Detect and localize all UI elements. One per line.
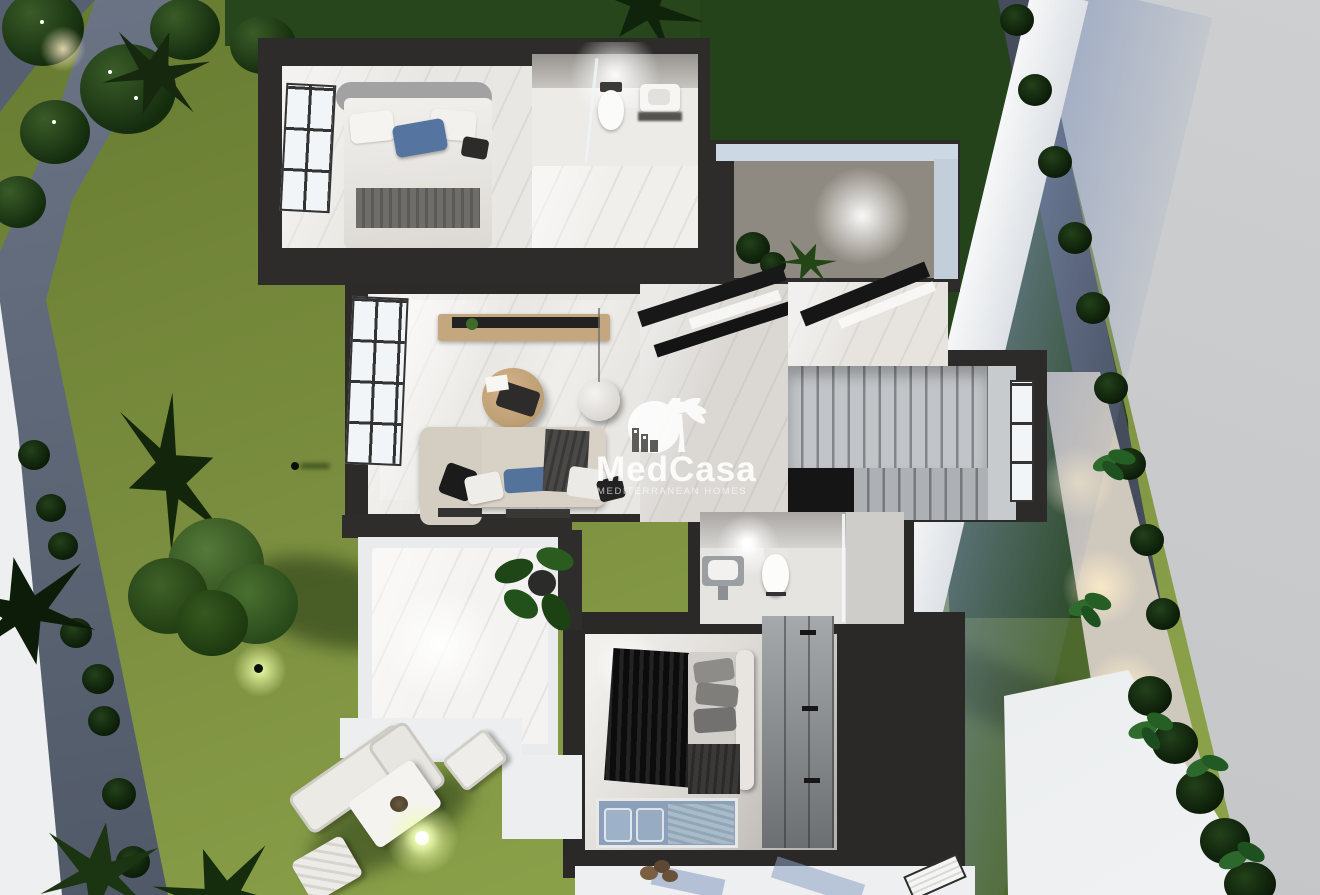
stair-window bbox=[1010, 380, 1034, 502]
watermark: MedCasa MEDITERRANEAN HOMES bbox=[588, 398, 748, 502]
bollard-shadow-1 bbox=[300, 463, 330, 469]
bush-left-1 bbox=[18, 440, 50, 470]
dried-plant bbox=[640, 860, 680, 886]
bed2-blanket bbox=[688, 744, 740, 794]
bush-right-5 bbox=[1076, 292, 1110, 324]
bush-left-7 bbox=[102, 778, 136, 810]
bush-right-9 bbox=[1146, 598, 1180, 630]
wardrobe-handle-2 bbox=[802, 706, 818, 711]
bed-1 bbox=[336, 80, 496, 250]
bollard-light-2 bbox=[254, 664, 263, 673]
leaf-plant-5 bbox=[1218, 842, 1268, 882]
flower-speck-1 bbox=[108, 70, 112, 74]
medcasa-logo-icon bbox=[614, 398, 724, 454]
hedge-bush-1 bbox=[1128, 676, 1172, 716]
flower-speck-3 bbox=[52, 120, 56, 124]
bush-left-6 bbox=[88, 706, 120, 736]
bed2-pillow-2 bbox=[695, 682, 739, 708]
sink-2 bbox=[702, 556, 746, 594]
bush-right-8 bbox=[1130, 524, 1164, 556]
living-window bbox=[345, 296, 408, 466]
garden-tree bbox=[118, 498, 298, 658]
bed1-throw-blanket bbox=[356, 188, 480, 228]
coffee-table-book bbox=[485, 375, 509, 393]
bath2-light-dot bbox=[742, 538, 752, 548]
flower-speck-4 bbox=[40, 20, 44, 24]
courtyard-frame-right bbox=[934, 159, 958, 279]
garden-uplight-top bbox=[40, 26, 86, 72]
garden-lamp bbox=[415, 831, 429, 845]
flower-bush-3 bbox=[20, 100, 90, 164]
rug-cushion-1 bbox=[604, 808, 632, 842]
egg-chair-stand bbox=[598, 308, 600, 382]
bed1-pillow-left bbox=[349, 110, 396, 144]
leaf-plant-4 bbox=[1185, 752, 1231, 788]
bedroom1-window bbox=[280, 83, 337, 213]
rug-cushion-2 bbox=[636, 808, 664, 842]
bush-left-3 bbox=[48, 532, 78, 560]
terrace-side-strip bbox=[502, 755, 582, 839]
rug-texture-patch bbox=[668, 804, 734, 844]
bed2-pillow-3 bbox=[693, 707, 737, 734]
bath2-floor-shadow bbox=[846, 512, 904, 624]
bed1-dark-cushion bbox=[460, 136, 489, 160]
terrace-potted-plant bbox=[488, 552, 580, 656]
shower-glass-2 bbox=[842, 514, 845, 622]
bed-2 bbox=[686, 648, 756, 798]
hall1-floor bbox=[532, 166, 698, 248]
wardrobe-handle-1 bbox=[800, 630, 816, 635]
bush-left-2 bbox=[36, 494, 66, 522]
wardrobe bbox=[762, 616, 834, 848]
toilet-1 bbox=[598, 82, 626, 130]
bush-right-2 bbox=[1018, 74, 1052, 106]
flower-speck-2 bbox=[134, 96, 138, 100]
courtyard-spotlight bbox=[812, 168, 912, 264]
leaf-plant-3 bbox=[1128, 712, 1176, 750]
toilet-2 bbox=[762, 548, 790, 598]
console-plant-icon bbox=[466, 318, 478, 330]
bush-right-4 bbox=[1058, 222, 1092, 254]
sink-1 bbox=[640, 84, 684, 124]
wardrobe-handle-3 bbox=[804, 778, 820, 783]
bush-right-1 bbox=[1000, 4, 1034, 36]
stairs-upper-flight bbox=[788, 366, 988, 468]
watermark-brand: MedCasa bbox=[596, 450, 757, 490]
terrace-glow bbox=[380, 590, 500, 700]
watermark-tagline: MEDITERRANEAN HOMES bbox=[597, 486, 747, 497]
floor-mat-1 bbox=[438, 508, 482, 517]
leaf-plant-2 bbox=[1068, 592, 1114, 628]
leaf-plant-1 bbox=[1092, 448, 1136, 482]
bush-left-5 bbox=[82, 664, 114, 694]
floor-plan-render: MedCasa MEDITERRANEAN HOMES bbox=[0, 0, 1320, 895]
bollard-light-1 bbox=[291, 462, 299, 470]
courtyard-frame-top bbox=[716, 144, 958, 161]
bush-right-6 bbox=[1094, 372, 1128, 404]
bush-right-3 bbox=[1038, 146, 1072, 178]
floor-mat-2 bbox=[506, 509, 570, 518]
